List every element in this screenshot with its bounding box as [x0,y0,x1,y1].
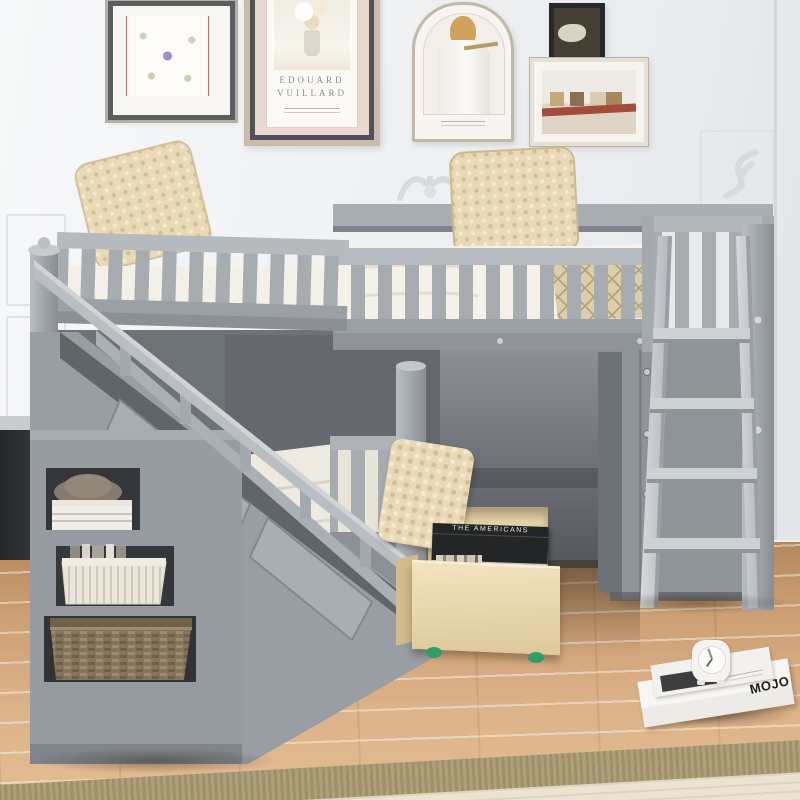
folded-towels [52,506,132,530]
floor-book-stack: MOJO [628,628,800,738]
drawer-caster-wheel [528,652,544,663]
storage-cubby-wicker-basket [44,616,196,682]
product-photo-bunk-bed: EDOUARD VUILLARD [0,0,800,800]
clock-hand-minute [707,648,713,659]
white-woven-basket [62,562,166,604]
bunk-bed-left-top [55,139,349,332]
book-top-spine-lines [729,670,763,681]
floor-shadow-staircase [30,748,280,774]
wicker-basket [50,622,192,680]
storage-cubby-white-basket [56,544,174,606]
alarm-clock [692,640,730,682]
clock-face [698,646,726,674]
storage-cubby-towels [46,468,140,530]
drawer-front-face [412,560,560,655]
storage-drawer: THE AMERICANS [390,495,568,667]
clock-hand-hour [706,658,713,667]
pillow-right-loft [449,147,578,257]
clock-foot [717,680,725,685]
drawer-caster-wheel [426,647,442,658]
floor-shadow-wardrobe [600,592,790,614]
clock-foot [697,680,705,685]
